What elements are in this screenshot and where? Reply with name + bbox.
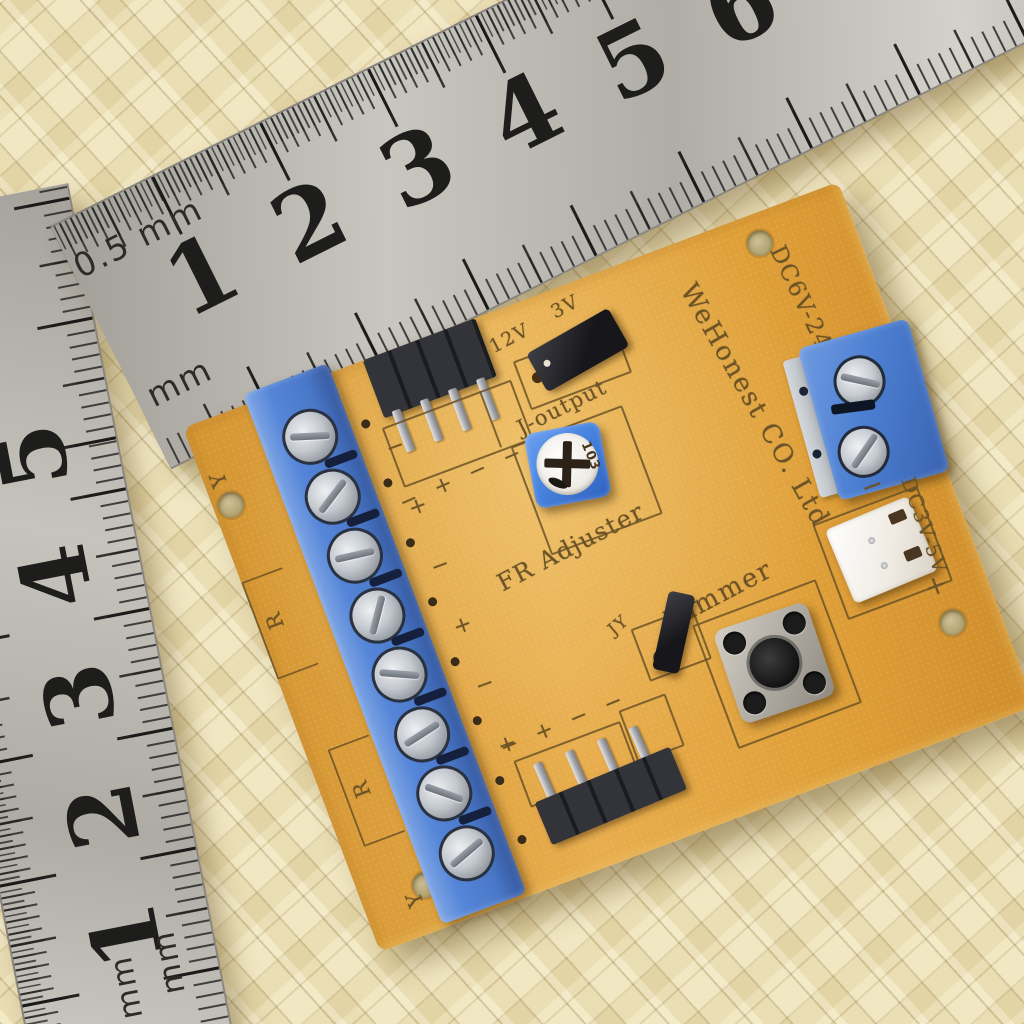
ruler-number: 2 [44,758,161,875]
terminal-pin-pad [471,715,483,727]
screw-slot [449,837,484,868]
mounting-hole [214,488,247,521]
button-corner-contact [740,688,769,717]
screw-slot [290,432,330,441]
ruler-number: 5 [572,0,695,123]
button-plunger [743,631,806,694]
silk-polarity-mark: − [427,552,455,580]
trimmer-dial: 103 [531,428,603,500]
terminal-screw [431,817,503,889]
ruler-number: 6 [679,0,802,70]
ruler-number: 4 [463,51,586,177]
screw-slot [403,720,440,747]
screw-slot [334,547,375,563]
ruler-number: 5 [0,398,91,515]
terminal-pin-pad [360,418,372,430]
ruler-unit-label: mm [140,349,219,414]
dial-slot [562,441,572,487]
screw-slot [424,783,464,803]
silk-polarity-mark: − [472,671,500,699]
silk-polarity-mark: + [449,612,477,640]
ruler-number: 3 [21,638,138,755]
screw-slot [850,433,878,470]
ruler-number: 4 [0,518,115,635]
silk-corner-label: Y [403,888,428,910]
ruler-unit-label: mm [145,927,193,997]
silk-jumper-option-right: 3V [548,292,582,322]
ruler-number: 2 [248,159,371,285]
terminal-pin-pad [516,834,528,846]
silk-jy-label: JY [605,612,632,639]
screw-slot [840,373,881,388]
button-corner-contact [800,668,829,697]
screw-slot [318,478,348,514]
terminal-pin-pad [449,656,461,668]
button-corner-contact [720,629,749,658]
silk-jumper-option-left: 12V [487,321,533,357]
button-corner-contact [780,608,809,637]
silk-corner-label: Y [206,468,231,490]
terminal-pin-pad [494,775,506,787]
terminal-pin-pad [382,477,394,489]
jst-keying-slot [888,508,908,525]
jst-pin [867,536,876,545]
terminal-pin-pad [405,537,417,549]
screw-slot [379,669,419,679]
jst-pin [880,561,889,570]
ruler-number: 3 [356,105,479,231]
terminal-pin-pad [427,596,439,608]
scene: 5 4 3 2 1 mm 0.5 mm 1 2 3 4 5 6 0.5 mm m… [0,0,1024,1024]
trimmer-potentiometer: 103 [523,421,612,510]
screw-slot [369,595,386,635]
mounting-hole [936,606,969,639]
